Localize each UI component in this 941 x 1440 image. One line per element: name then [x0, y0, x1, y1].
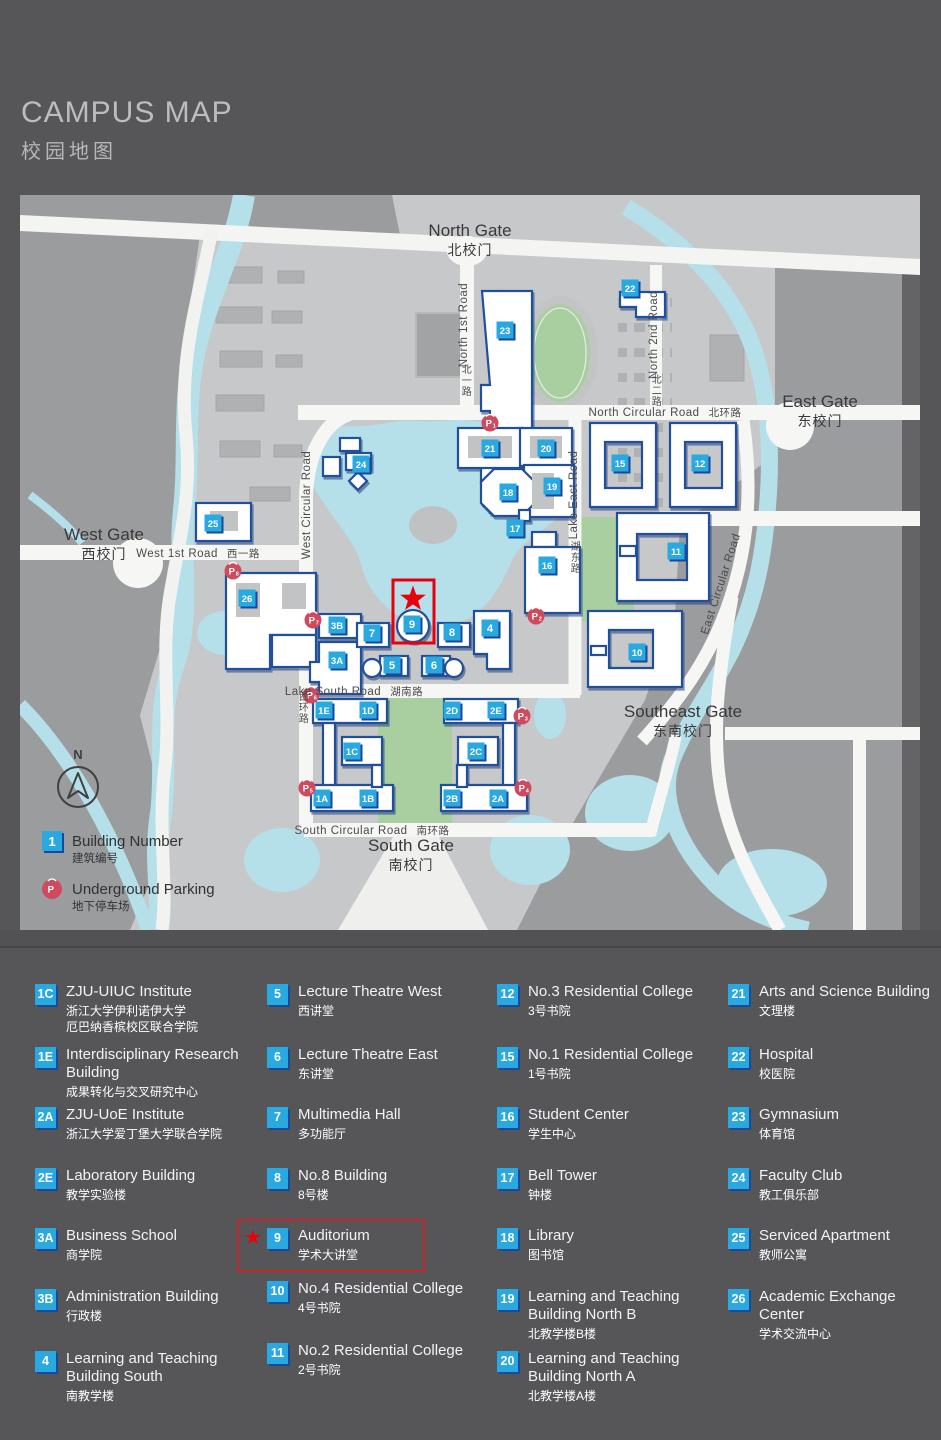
map-building-badge-6: 6 — [426, 657, 445, 676]
svg-text:南校门: 南校门 — [389, 857, 434, 873]
legend-item-17: ★17Bell Tower钟楼 — [497, 1167, 728, 1204]
legend-item-name-en: ZJU-UIUC Institute — [66, 983, 198, 1001]
legend-item-name-zh: 教工俱乐部 — [759, 1188, 842, 1204]
svg-text:11: 11 — [671, 547, 682, 558]
legend-cell: ★12No.3 Residential College3号书院 — [497, 983, 728, 1046]
map-bottom-strip — [0, 930, 941, 948]
building-shape-17 — [519, 510, 530, 521]
legend-item-text: Learning and Teaching Building North A北教… — [528, 1350, 728, 1405]
road-label-lake-east-road: Lake East Road — [568, 451, 580, 540]
legend-item-name-en: Laboratory Building — [66, 1167, 195, 1185]
legend-item-text: No.3 Residential College3号书院 — [528, 983, 693, 1020]
svg-text:2B: 2B — [446, 794, 458, 805]
svg-text:West Gate: West Gate — [64, 525, 144, 544]
legend-item-name-en: Serviced Apartment — [759, 1227, 890, 1245]
legend-item-6: ★6Lecture Theatre East东讲堂 — [267, 1046, 497, 1083]
legend-item-name-en: No.8 Building — [298, 1167, 387, 1185]
legend-cell: ★5Lecture Theatre West西讲堂 — [267, 983, 497, 1046]
legend-badge-9: 9 — [267, 1228, 288, 1249]
legend-item-name-zh: 2号书院 — [298, 1363, 463, 1379]
svg-text:2A: 2A — [492, 794, 504, 805]
map-building-badge-24: 24 — [353, 456, 372, 475]
legend-badge-17: 17 — [497, 1168, 518, 1189]
map-building-badge-5: 5 — [384, 657, 403, 676]
legend-badge-21: 21 — [728, 984, 749, 1005]
legend-item-3B: ★3BAdministration Building行政楼 — [35, 1288, 267, 1325]
map-building-badge-17: 17 — [507, 520, 526, 539]
legend-badge-19: 19 — [497, 1289, 518, 1310]
legend-item-name-zh: 教师公寓 — [759, 1248, 890, 1264]
legend-item-name-zh: 8号楼 — [298, 1188, 387, 1204]
legend-item-text: No.4 Residential College4号书院 — [298, 1280, 463, 1317]
map-building-badge-18: 18 — [500, 484, 519, 503]
road-label-south-circular-road: South Circular Road南环路 — [294, 824, 449, 837]
legend-badge-4: 4 — [35, 1351, 56, 1372]
legend-item-name-zh: 教学实验楼 — [66, 1188, 195, 1204]
legend-item-name-zh: 学生中心 — [528, 1127, 629, 1143]
legend-item-text: Serviced Apartment教师公寓 — [759, 1227, 890, 1264]
legend-cell: ★8No.8 Building8号楼 — [267, 1167, 497, 1227]
legend-item-name-en: Learning and Teaching Building South — [66, 1350, 267, 1386]
legend-item-name-zh: 浙江大学伊利诺伊大学 厄巴纳香槟校区联合学院 — [66, 1004, 198, 1035]
legend-item-text: Interdisciplinary Research Building成果转化与… — [66, 1046, 267, 1101]
legend-item-name-zh: 北教学楼A楼 — [528, 1389, 728, 1405]
svg-text:25: 25 — [208, 519, 219, 530]
legend-item-name-en: No.4 Residential College — [298, 1280, 463, 1298]
legend-item-name-zh: 钟楼 — [528, 1188, 597, 1204]
svg-text:20: 20 — [541, 444, 552, 455]
legend-item-name-en: No.1 Residential College — [528, 1046, 693, 1064]
svg-text:5: 5 — [389, 660, 395, 672]
legend-column-3: ★12No.3 Residential College3号书院★15No.1 R… — [497, 983, 728, 1436]
svg-text:P: P — [486, 418, 493, 429]
svg-text:Underground Parking: Underground Parking — [72, 881, 215, 898]
legend-badge-10: 10 — [267, 1281, 288, 1302]
legend-item-22: ★22Hospital校医院 — [728, 1046, 938, 1083]
legend-item-23: ★23Gymnasium体育馆 — [728, 1106, 938, 1143]
svg-text:P: P — [48, 884, 55, 895]
legend-item-name-zh: 1号书院 — [528, 1067, 693, 1083]
svg-text:2: 2 — [539, 617, 542, 623]
map-building-badge-8: 8 — [444, 624, 463, 643]
legend-item-name-en: Administration Building — [66, 1288, 219, 1306]
svg-text:1D: 1D — [362, 706, 374, 717]
road-label-west-1st-road: West 1st Road西一路 — [136, 547, 260, 560]
map-building-badge-1D: 1D — [360, 702, 379, 721]
svg-text:3: 3 — [525, 717, 528, 723]
legend-item-4: ★4Learning and Teaching Building South南教… — [35, 1350, 267, 1405]
legend-item-name-zh: 行政楼 — [66, 1309, 219, 1325]
svg-text:21: 21 — [485, 444, 496, 455]
map-building-badge-10: 10 — [629, 644, 648, 663]
page-subtitle: 校园地图 — [21, 135, 233, 164]
legend-badge-7: 7 — [267, 1107, 288, 1128]
building-shape-16-annex — [532, 532, 556, 547]
legend-cell: ★16Student Center学生中心 — [497, 1106, 728, 1167]
map-building-badge-2C: 2C — [468, 743, 487, 762]
map-building-badge-22: 22 — [622, 280, 641, 299]
legend-item-name-en: Auditorium — [298, 1227, 370, 1245]
legend-badge-1E: 1E — [35, 1047, 56, 1068]
legend-badge-24: 24 — [728, 1168, 749, 1189]
legend-item-name-zh: 浙江大学爱丁堡大学联合学院 — [66, 1127, 222, 1143]
svg-text:西校门: 西校门 — [82, 546, 127, 562]
svg-text:22: 22 — [625, 284, 636, 295]
legend-cell: ★3BAdministration Building行政楼 — [35, 1288, 267, 1350]
road-label-north-2nd-road: North 2nd Road — [648, 291, 660, 379]
svg-text:18: 18 — [503, 488, 514, 499]
map-building-badge-15: 15 — [612, 455, 631, 474]
legend-item-name-zh: 商学院 — [66, 1248, 177, 1264]
legend-item-15: ★15No.1 Residential College1号书院 — [497, 1046, 728, 1083]
legend-item-name-en: Arts and Science Building — [759, 983, 930, 1001]
legend-badge-6: 6 — [267, 1047, 288, 1068]
legend-item-9: ★9Auditorium学术大讲堂 — [237, 1219, 425, 1272]
legend-cell: ★18Library图书馆 — [497, 1227, 728, 1288]
legend-cell: ★19Learning and Teaching Building North … — [497, 1288, 728, 1350]
svg-text:P: P — [303, 783, 310, 794]
legend-item-19: ★19Learning and Teaching Building North … — [497, 1288, 728, 1343]
legend-cell: ★6Lecture Theatre East东讲堂 — [267, 1046, 497, 1106]
legend-item-12: ★12No.3 Residential College3号书院 — [497, 983, 728, 1020]
svg-text:Building Number: Building Number — [72, 833, 183, 850]
legend-item-21: ★21Arts and Science Building文理楼 — [728, 983, 938, 1020]
legend-cell: ★9Auditorium学术大讲堂 — [267, 1219, 497, 1280]
campus-map-svg: 2322212015121819171611102524263B79843A56… — [20, 195, 920, 930]
svg-text:9: 9 — [409, 619, 415, 631]
legend-item-16: ★16Student Center学生中心 — [497, 1106, 728, 1143]
legend-item-text: No.1 Residential College1号书院 — [528, 1046, 693, 1083]
lake-island — [409, 506, 457, 544]
legend-cell: ★15No.1 Residential College1号书院 — [497, 1046, 728, 1106]
svg-text:19: 19 — [547, 482, 558, 493]
legend-item-10: ★10No.4 Residential College4号书院 — [267, 1280, 497, 1317]
legend-cell: ★26Academic Exchange Center学术交流中心 — [728, 1288, 938, 1350]
legend-item-18: ★18Library图书馆 — [497, 1227, 728, 1264]
map-building-badge-1C: 1C — [344, 743, 363, 762]
map-building-badge-3B: 3B — [329, 617, 348, 636]
legend-badge-23: 23 — [728, 1107, 749, 1128]
legend-item-name-zh: 文理楼 — [759, 1004, 930, 1020]
legend-item-text: Faculty Club教工俱乐部 — [759, 1167, 842, 1204]
legend-cell: ★1EInterdisciplinary Research Building成果… — [35, 1046, 267, 1106]
road-label-lake-south-road: Lake South Road湖南路 — [285, 685, 423, 698]
legend-badge-2A: 2A — [35, 1107, 56, 1128]
svg-text:8: 8 — [236, 572, 239, 578]
legend-item-text: Auditorium学术大讲堂 — [298, 1227, 370, 1264]
svg-text:P: P — [519, 783, 526, 794]
map-building-badge-4: 4 — [482, 620, 501, 639]
legend-item-text: Gymnasium体育馆 — [759, 1106, 839, 1143]
legend-badge-22: 22 — [728, 1047, 749, 1068]
legend-cell: ★20Learning and Teaching Building North … — [497, 1350, 728, 1436]
legend-cell: ★4Learning and Teaching Building South南教… — [35, 1350, 267, 1436]
legend-item-text: Business School商学院 — [66, 1227, 177, 1264]
svg-text:P: P — [229, 566, 236, 577]
legend-badge-1C: 1C — [35, 984, 56, 1005]
svg-text:1E: 1E — [318, 706, 330, 717]
legend-item-name-zh: 学术交流中心 — [759, 1327, 938, 1343]
svg-text:16: 16 — [542, 561, 553, 572]
legend-item-name-zh: 多功能厅 — [298, 1127, 401, 1143]
legend-item-text: No.2 Residential College2号书院 — [298, 1342, 463, 1379]
map-building-badge-2A: 2A — [490, 790, 509, 809]
map-building-badge-7: 7 — [364, 625, 383, 644]
legend-item-name-en: Faculty Club — [759, 1167, 842, 1185]
legend-item-name-zh: 3号书院 — [528, 1004, 693, 1020]
legend-item-name-zh: 学术大讲堂 — [298, 1248, 370, 1264]
svg-text:26: 26 — [242, 594, 253, 605]
map-building-badge-16: 16 — [539, 557, 558, 576]
map-building-badge-9: 9 — [404, 616, 423, 635]
legend-column-4: ★21Arts and Science Building文理楼★22Hospit… — [728, 983, 938, 1436]
legend-cell: ★2AZJU-UoE Institute浙江大学爱丁堡大学联合学院 — [35, 1106, 267, 1167]
map-building-badge-1B: 1B — [360, 790, 379, 809]
map-parking-p4: P4 — [515, 780, 532, 797]
svg-text:3B: 3B — [331, 621, 343, 632]
legend-column-2: ★5Lecture Theatre West西讲堂★6Lecture Theat… — [267, 983, 497, 1436]
map-building-badge-23: 23 — [497, 322, 516, 341]
campus-map: 2322212015121819171611102524263B79843A56… — [20, 195, 920, 930]
map-building-badge-25: 25 — [205, 515, 224, 534]
svg-text:2C: 2C — [470, 747, 482, 758]
legend-item-text: Library图书馆 — [528, 1227, 574, 1264]
svg-text:建筑编号: 建筑编号 — [72, 851, 118, 865]
legend-item-name-zh: 4号书院 — [298, 1301, 463, 1317]
legend-item-text: Student Center学生中心 — [528, 1106, 629, 1143]
svg-text:P: P — [518, 711, 525, 722]
map-east-edge — [902, 267, 920, 930]
legend-item-name-zh: 西讲堂 — [298, 1004, 442, 1020]
legend-badge-5: 5 — [267, 984, 288, 1005]
svg-text:东校门: 东校门 — [798, 413, 843, 429]
legend-cell: ★21Arts and Science Building文理楼 — [728, 983, 938, 1046]
svg-text:6: 6 — [431, 660, 437, 672]
map-building-badge-12: 12 — [692, 455, 711, 474]
legend-badge-18: 18 — [497, 1228, 518, 1249]
svg-text:东南校门: 东南校门 — [653, 723, 713, 739]
legend-cell: ★7Multimedia Hall多功能厅 — [267, 1106, 497, 1167]
legend-item-text: Bell Tower钟楼 — [528, 1167, 597, 1204]
building-legend: ★1CZJU-UIUC Institute浙江大学伊利诺伊大学 厄巴纳香槟校区联… — [35, 983, 938, 1436]
legend-item-name-en: Interdisciplinary Research Building — [66, 1046, 267, 1082]
legend-badge-3A: 3A — [35, 1228, 56, 1249]
svg-text:1: 1 — [48, 834, 55, 849]
map-building-badge-21: 21 — [482, 440, 501, 459]
legend-item-text: ZJU-UIUC Institute浙江大学伊利诺伊大学 厄巴纳香槟校区联合学院 — [66, 983, 198, 1035]
map-building-badge-3A: 3A — [329, 652, 348, 671]
legend-item-text: Administration Building行政楼 — [66, 1288, 219, 1325]
svg-text:地下停车场: 地下停车场 — [72, 899, 130, 913]
legend-item-text: Lecture Theatre West西讲堂 — [298, 983, 442, 1020]
road-label-north-circular-road: North Circular Road北环路 — [588, 406, 741, 419]
legend-cell: ★17Bell Tower钟楼 — [497, 1167, 728, 1227]
map-building-badge-2B: 2B — [444, 790, 463, 809]
legend-item-text: Learning and Teaching Building North B北教… — [528, 1288, 728, 1343]
svg-text:23: 23 — [500, 326, 511, 337]
svg-text:7: 7 — [369, 628, 375, 640]
svg-text:P: P — [309, 615, 316, 626]
legend-item-name-en: Lecture Theatre East — [298, 1046, 438, 1064]
legend-item-text: Laboratory Building教学实验楼 — [66, 1167, 195, 1204]
map-building-badge-1: 1 — [42, 831, 64, 853]
svg-text:24: 24 — [356, 460, 367, 471]
legend-item-name-en: Student Center — [528, 1106, 629, 1124]
map-building-badge-1A: 1A — [314, 790, 333, 809]
svg-text:Southeast Gate: Southeast Gate — [624, 702, 742, 721]
legend-item-name-zh: 北教学楼B楼 — [528, 1327, 728, 1343]
legend-star-icon: ★ — [244, 1228, 262, 1248]
legend-item-name-zh: 东讲堂 — [298, 1067, 438, 1083]
map-parking-p7: P7 — [305, 612, 322, 629]
legend-item-11: ★11No.2 Residential College2号书院 — [267, 1342, 497, 1379]
legend-cell: ★24Faculty Club教工俱乐部 — [728, 1167, 938, 1227]
legend-item-1E: ★1EInterdisciplinary Research Building成果… — [35, 1046, 267, 1101]
legend-item-8: ★8No.8 Building8号楼 — [267, 1167, 497, 1204]
legend-badge-2E: 2E — [35, 1168, 56, 1189]
legend-cell: ★10No.4 Residential College4号书院 — [267, 1280, 497, 1342]
building-shape-24 — [340, 438, 360, 451]
svg-text:South Gate: South Gate — [368, 836, 454, 855]
svg-text:7: 7 — [316, 621, 319, 627]
map-parking-p8: P8 — [225, 563, 242, 580]
legend-item-name-en: Library — [528, 1227, 574, 1245]
road-label-north-1st-road: North 1st Road — [458, 283, 470, 367]
legend-item-name-zh: 成果转化与交叉研究中心 — [66, 1085, 267, 1101]
running-track — [526, 300, 594, 406]
legend-item-text: Arts and Science Building文理楼 — [759, 983, 930, 1020]
legend-item-name-en: ZJU-UoE Institute — [66, 1106, 222, 1124]
svg-text:15: 15 — [615, 459, 626, 470]
legend-cell: ★25Serviced Apartment教师公寓 — [728, 1227, 938, 1288]
svg-text:North Gate: North Gate — [428, 221, 511, 240]
legend-item-2A: ★2AZJU-UoE Institute浙江大学爱丁堡大学联合学院 — [35, 1106, 267, 1143]
map-building-badge-1E: 1E — [316, 702, 335, 721]
legend-item-3A: ★3ABusiness School商学院 — [35, 1227, 267, 1264]
legend-item-7: ★7Multimedia Hall多功能厅 — [267, 1106, 497, 1143]
legend-badge-8: 8 — [267, 1168, 288, 1189]
svg-text:1C: 1C — [346, 747, 358, 758]
legend-item-name-en: Business School — [66, 1227, 177, 1245]
legend-item-text: Lecture Theatre East东讲堂 — [298, 1046, 438, 1083]
road-label-north-2nd-road-zh: 北二路 — [652, 374, 663, 408]
legend-item-name-zh: 南教学楼 — [66, 1389, 267, 1405]
legend-item-text: Academic Exchange Center学术交流中心 — [759, 1288, 938, 1343]
legend-cell: ★22Hospital校医院 — [728, 1046, 938, 1106]
svg-text:10: 10 — [632, 648, 643, 659]
legend-item-name-en: Hospital — [759, 1046, 813, 1064]
legend-item-1C: ★1CZJU-UIUC Institute浙江大学伊利诺伊大学 厄巴纳香槟校区联… — [35, 983, 267, 1035]
legend-badge-11: 11 — [267, 1343, 288, 1364]
legend-item-name-en: Learning and Teaching Building North B — [528, 1288, 728, 1324]
legend-item-text: Hospital校医院 — [759, 1046, 813, 1083]
legend-item-name-zh: 图书馆 — [528, 1248, 574, 1264]
svg-text:1A: 1A — [316, 794, 328, 805]
legend-cell: ★23Gymnasium体育馆 — [728, 1106, 938, 1167]
map-parking-p: P — [42, 879, 62, 899]
map-parking-p1: P1 — [482, 415, 499, 432]
svg-text:1B: 1B — [362, 794, 374, 805]
svg-text:2E: 2E — [490, 706, 502, 717]
legend-cell: ★2ELaboratory Building教学实验楼 — [35, 1167, 267, 1227]
legend-badge-20: 20 — [497, 1351, 518, 1372]
svg-text:5: 5 — [310, 789, 313, 795]
legend-item-20: ★20Learning and Teaching Building North … — [497, 1350, 728, 1405]
legend-item-name-zh: 体育馆 — [759, 1127, 839, 1143]
page-header: CAMPUS MAP 校园地图 — [21, 96, 233, 164]
legend-item-25: ★25Serviced Apartment教师公寓 — [728, 1227, 938, 1264]
legend-item-text: Multimedia Hall多功能厅 — [298, 1106, 401, 1143]
legend-cell: ★1CZJU-UIUC Institute浙江大学伊利诺伊大学 厄巴纳香槟校区联… — [35, 983, 267, 1046]
road-label-west-circular-road: West Circular Road — [301, 451, 313, 560]
legend-column-1: ★1CZJU-UIUC Institute浙江大学伊利诺伊大学 厄巴纳香槟校区联… — [35, 983, 267, 1436]
legend-item-name-en: No.2 Residential College — [298, 1342, 463, 1360]
svg-text:P: P — [532, 611, 539, 622]
legend-item-26: ★26Academic Exchange Center学术交流中心 — [728, 1288, 938, 1343]
legend-item-text: ZJU-UoE Institute浙江大学爱丁堡大学联合学院 — [66, 1106, 222, 1143]
legend-badge-25: 25 — [728, 1228, 749, 1249]
map-parking-p3: P3 — [514, 708, 531, 725]
legend-item-text: Learning and Teaching Building South南教学楼 — [66, 1350, 267, 1405]
road-label-lake-east-road-zh: 湖东路 — [571, 541, 582, 575]
legend-item-name-en: Bell Tower — [528, 1167, 597, 1185]
legend-badge-15: 15 — [497, 1047, 518, 1068]
legend-item-2E: ★2ELaboratory Building教学实验楼 — [35, 1167, 267, 1204]
svg-text:北校门: 北校门 — [448, 242, 493, 258]
page-title: CAMPUS MAP — [21, 96, 233, 130]
legend-item-name-en: Multimedia Hall — [298, 1106, 401, 1124]
legend-item-24: ★24Faculty Club教工俱乐部 — [728, 1167, 938, 1204]
svg-text:4: 4 — [487, 623, 494, 635]
svg-text:1: 1 — [493, 424, 496, 430]
map-building-badge-19: 19 — [544, 478, 563, 497]
svg-text:12: 12 — [695, 459, 706, 470]
map-building-badge-20: 20 — [538, 440, 557, 459]
map-building-badge-26: 26 — [239, 590, 258, 609]
map-building-badge-11: 11 — [668, 543, 687, 562]
svg-text:2D: 2D — [446, 706, 458, 717]
svg-text:East Gate: East Gate — [782, 392, 858, 411]
soccer-field — [416, 313, 462, 377]
svg-text:8: 8 — [449, 627, 455, 639]
legend-cell: ★3ABusiness School商学院 — [35, 1227, 267, 1288]
legend-item-text: No.8 Building8号楼 — [298, 1167, 387, 1204]
svg-text:3A: 3A — [331, 656, 343, 667]
svg-text:N: N — [73, 747, 82, 762]
legend-item-5: ★5Lecture Theatre West西讲堂 — [267, 983, 497, 1020]
map-building-badge-2E: 2E — [488, 702, 507, 721]
legend-badge-3B: 3B — [35, 1289, 56, 1310]
legend-item-name-zh: 校医院 — [759, 1067, 813, 1083]
map-parking-p2: P2 — [528, 608, 545, 625]
svg-text:17: 17 — [510, 524, 521, 535]
legend-item-name-en: Gymnasium — [759, 1106, 839, 1124]
map-building-badge-2D: 2D — [444, 702, 463, 721]
legend-badge-26: 26 — [728, 1289, 749, 1310]
legend-item-name-en: Learning and Teaching Building North A — [528, 1350, 728, 1386]
legend-badge-12: 12 — [497, 984, 518, 1005]
legend-item-name-en: No.3 Residential College — [528, 983, 693, 1001]
road-label-north-1st-road-zh: 北一路 — [462, 364, 473, 398]
map-parking-p5: P5 — [299, 780, 316, 797]
legend-badge-16: 16 — [497, 1107, 518, 1128]
legend-item-name-en: Lecture Theatre West — [298, 983, 442, 1001]
legend-cell: ★11No.2 Residential College2号书院 — [267, 1342, 497, 1428]
legend-item-name-en: Academic Exchange Center — [759, 1288, 938, 1324]
